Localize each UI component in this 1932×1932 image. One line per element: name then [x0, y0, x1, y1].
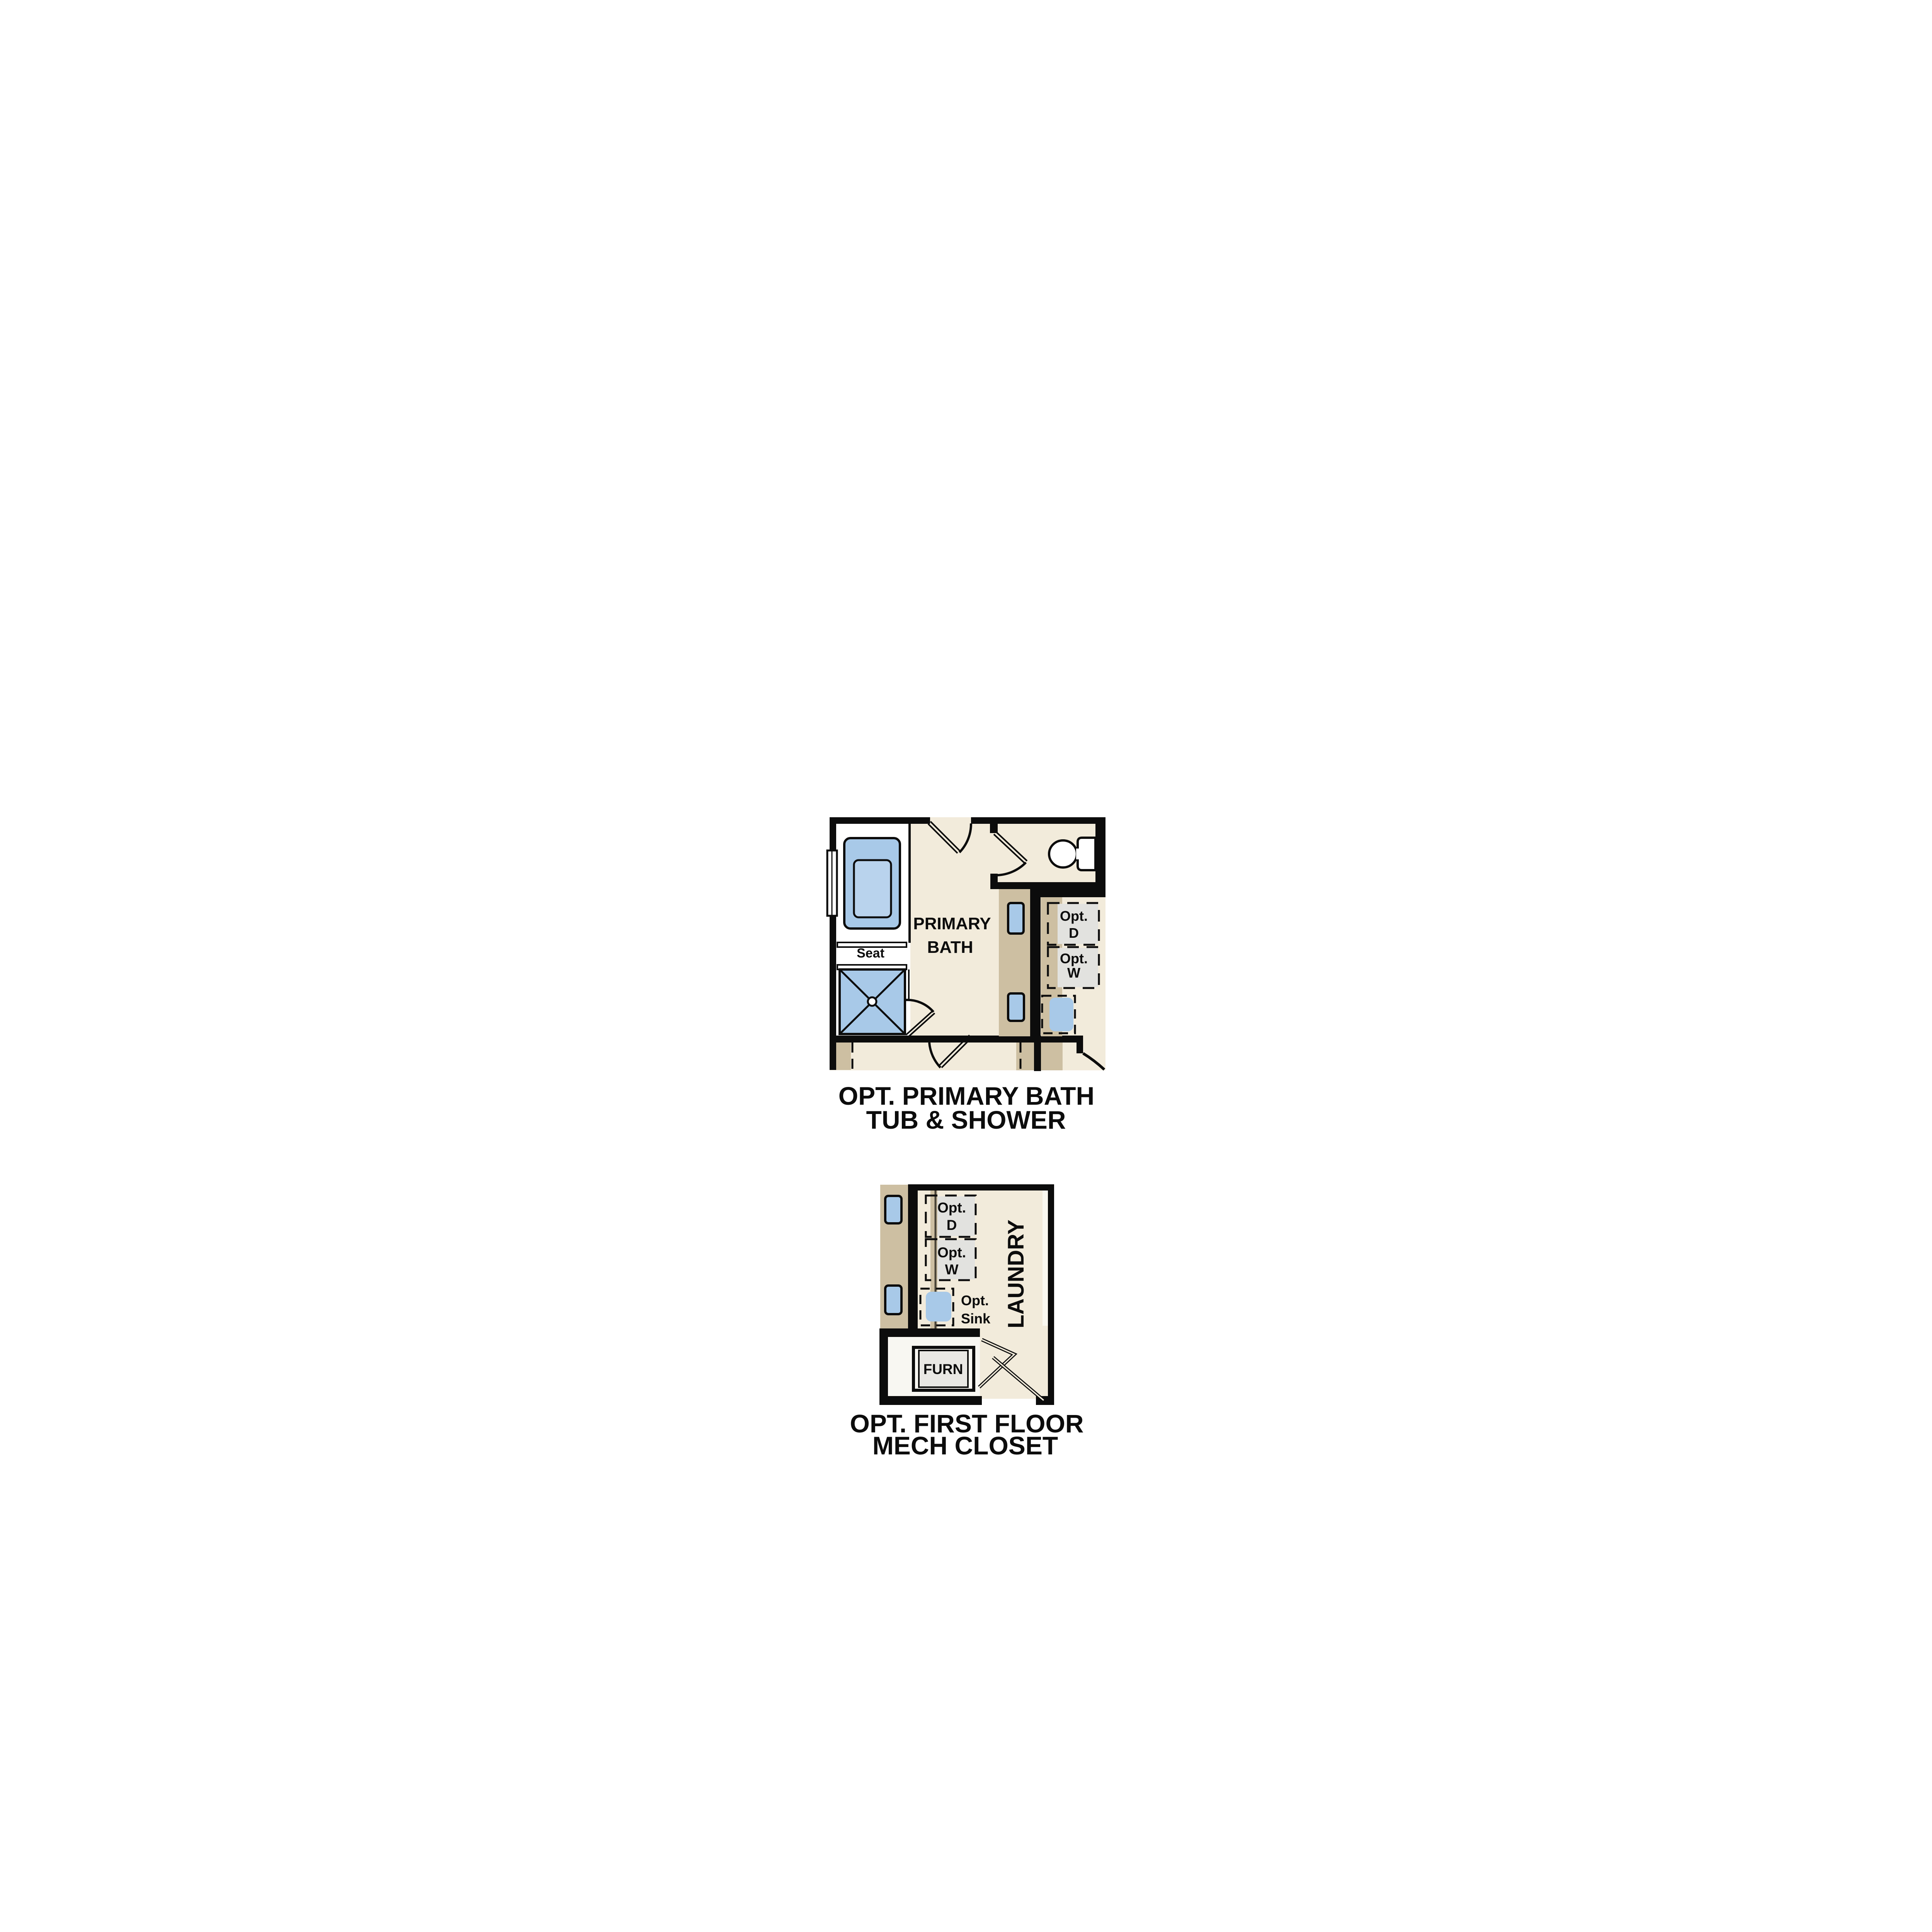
svg-text:PRIMARY: PRIMARY — [913, 914, 991, 933]
svg-text:W: W — [1067, 965, 1080, 981]
svg-text:D: D — [1069, 925, 1079, 941]
svg-text:D: D — [947, 1217, 957, 1233]
svg-text:Opt.: Opt. — [937, 1245, 966, 1260]
svg-text:MECH CLOSET: MECH CLOSET — [872, 1431, 1058, 1460]
svg-text:Opt.: Opt. — [1060, 951, 1088, 966]
svg-text:Seat: Seat — [857, 946, 884, 961]
svg-text:FURN: FURN — [923, 1361, 963, 1377]
svg-text:Sink: Sink — [961, 1311, 991, 1327]
svg-text:TUB & SHOWER: TUB & SHOWER — [866, 1105, 1066, 1134]
svg-text:W: W — [945, 1262, 959, 1277]
svg-text:Opt.: Opt. — [1060, 908, 1088, 924]
svg-text:BATH: BATH — [927, 938, 973, 957]
svg-text:Opt.: Opt. — [961, 1293, 989, 1308]
svg-text:LAUNDRY: LAUNDRY — [1003, 1219, 1029, 1328]
svg-text:Opt.: Opt. — [937, 1200, 966, 1216]
